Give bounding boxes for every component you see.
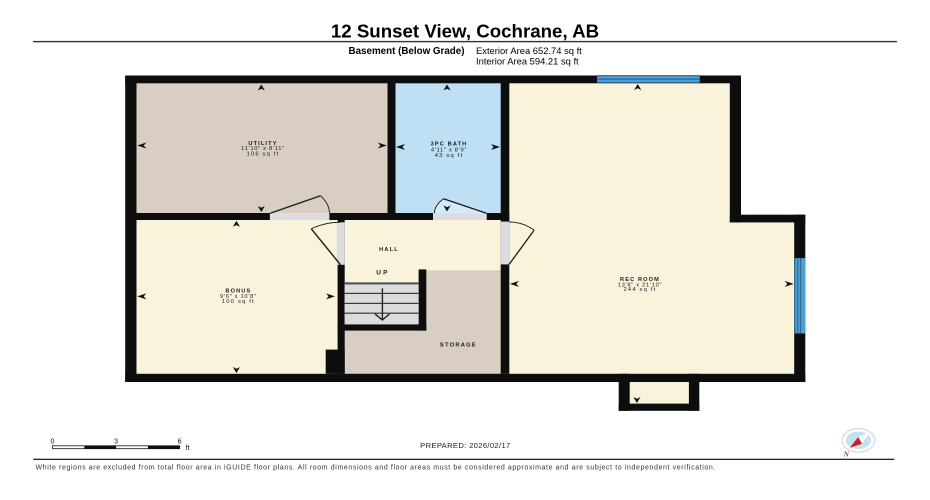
svg-text:HALL: HALL	[379, 247, 399, 253]
svg-text:White regions are excluded fro: White regions are excluded from total fl…	[36, 465, 716, 472]
svg-text:244 sq ft: 244 sq ft	[623, 287, 656, 293]
svg-text:43 sq ft: 43 sq ft	[435, 153, 464, 159]
svg-text:3: 3	[114, 438, 118, 445]
svg-text:STORAGE: STORAGE	[440, 343, 477, 349]
svg-text:Exterior Area 652.74 sq ft: Exterior Area 652.74 sq ft	[476, 45, 582, 56]
svg-text:100 sq ft: 100 sq ft	[222, 299, 255, 305]
svg-text:6: 6	[178, 438, 182, 445]
svg-text:106 sq ft: 106 sq ft	[246, 151, 279, 157]
svg-text:ft: ft	[186, 445, 190, 452]
svg-text:0: 0	[51, 438, 55, 445]
svg-text:Basement (Below Grade): Basement (Below Grade)	[349, 46, 465, 57]
svg-text:PREPARED: 2026/02/17: PREPARED: 2026/02/17	[420, 441, 510, 450]
svg-text:12 Sunset View, Cochrane, AB: 12 Sunset View, Cochrane, AB	[331, 20, 599, 41]
svg-text:UP: UP	[376, 269, 389, 276]
svg-text:N: N	[843, 450, 850, 458]
svg-text:Interior Area 594.21 sq ft: Interior Area 594.21 sq ft	[476, 55, 579, 66]
